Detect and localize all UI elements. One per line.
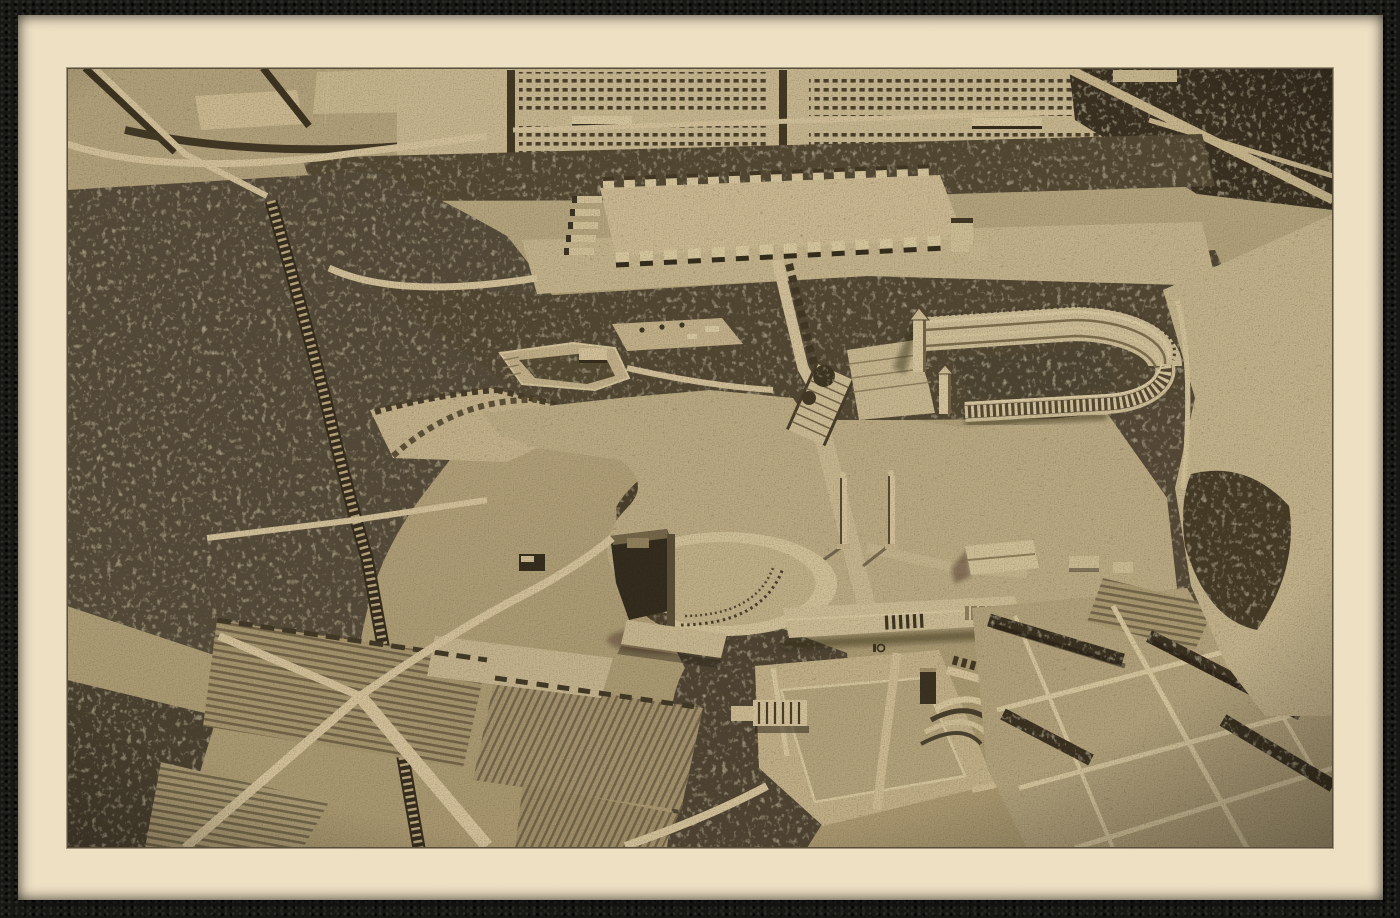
postcard-scan: Sepia aerial photograph of the model bbox=[0, 0, 1400, 918]
vignette bbox=[67, 68, 1333, 848]
model-aerial-view: Sepia aerial photograph of the model bbox=[67, 68, 1333, 848]
postcard-card: Sepia aerial photograph of the model bbox=[18, 15, 1383, 900]
aerial-photograph: Sepia aerial photograph of the model bbox=[67, 68, 1333, 848]
photo-surface-effects bbox=[67, 68, 1333, 848]
